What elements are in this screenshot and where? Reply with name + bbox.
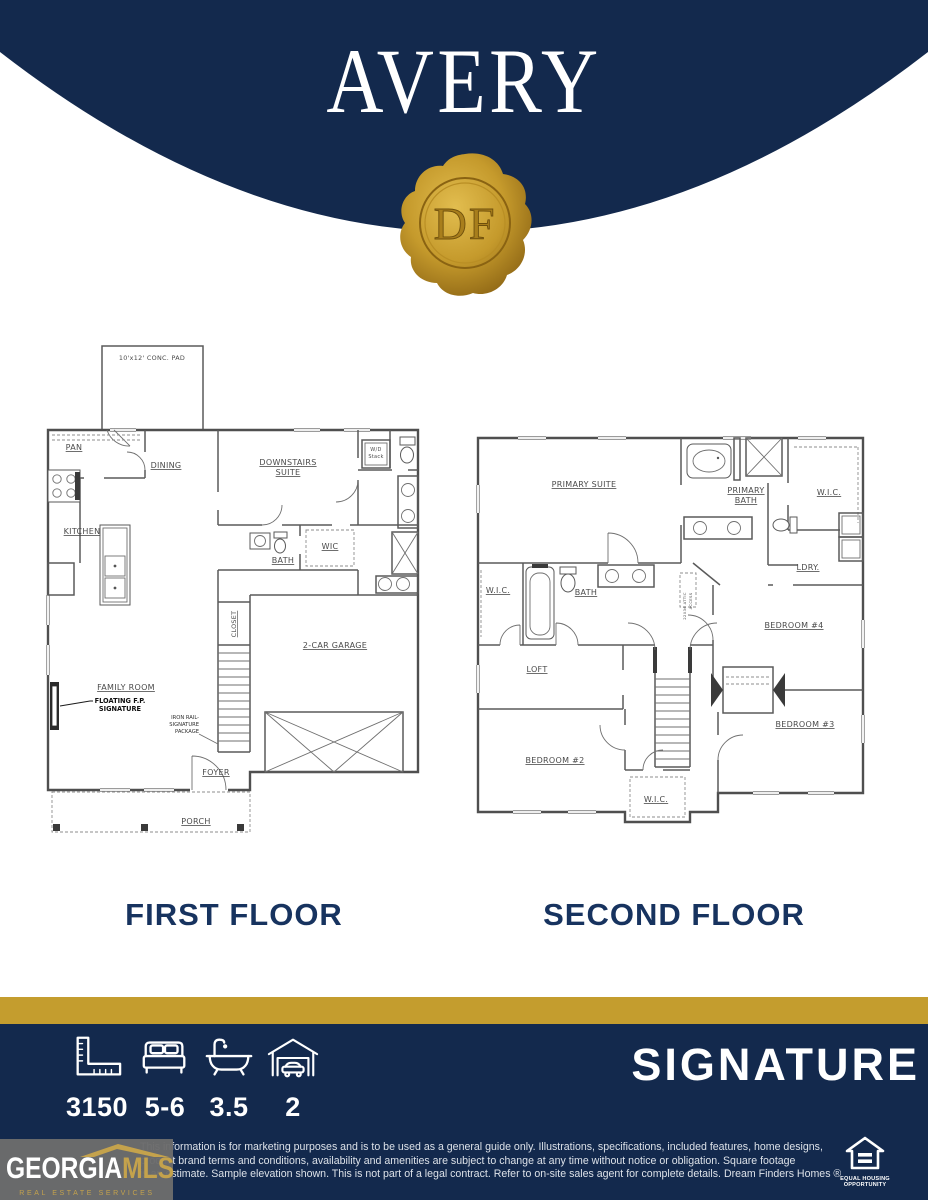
first-floor-title: FIRST FLOOR [44,897,424,933]
georgia-mls-logo: GEORGIAMLS REAL ESTATE SERVICES [0,1139,173,1200]
label-wic: WIC [322,542,339,551]
stat-square-feet: 3150 [66,1034,128,1123]
label-closet: CLOSET [230,611,238,638]
label-garage: 2-CAR GARAGE [303,641,367,650]
georgia-mls-tagline: REAL ESTATE SERVICES [6,1190,168,1197]
label-bedroom2: BEDROOM #2 [525,756,584,765]
stat-bathrooms: 3.5 [202,1034,256,1123]
bedrooms-value: 5-6 [138,1092,192,1123]
label-wd-stack: W/D [370,447,381,453]
svg-text:PACKAGE: PACKAGE [175,729,199,735]
label-iron-rail: IRON RAIL- [171,715,199,721]
label-primary-suite: PRIMARY SUITE [552,480,617,489]
label-foyer: FOYER [202,768,230,777]
bed-icon [138,1034,192,1082]
label-bath: BATH [272,556,294,565]
series-name: SIGNATURE [631,1039,920,1091]
label-porch: PORCH [181,817,210,826]
label-wic-bottom: W.I.C. [644,795,668,804]
label-bath: BATH [575,588,597,597]
flyer-page: AVERY DF [0,0,928,1200]
svg-text:Stack: Stack [368,454,383,460]
svg-text:BATH: BATH [735,496,757,505]
seal-monogram: DF [434,198,497,249]
disclaimer-text: This information is for marketing purpos… [140,1141,912,1182]
label-downstairs-suite: DOWNSTAIRS [259,458,316,467]
svg-text:SIGNATURE: SIGNATURE [99,705,142,713]
svg-text:ACCESS: ACCESS [688,592,693,609]
equal-housing-house-icon [845,1136,885,1170]
label-kitchen: KITCHEN [64,527,101,536]
label-pantry: PAN [66,443,83,452]
label-wic-left: W.I.C. [486,586,510,595]
square-feet-value: 3150 [66,1092,128,1123]
label-floating-fp: FLOATING F.P. [95,697,146,705]
label-conc-pad: 10'x12' CONC. PAD [119,354,185,362]
label-family-room: FAMILY ROOM [97,683,155,692]
ruler-icon [70,1034,124,1082]
garage-icon [266,1034,320,1082]
label-bedroom3: BEDROOM #3 [775,720,834,729]
second-floor-plan: PRIMARY SUITE PRIMARY BATH W.I.C. LDRY. … [468,425,880,835]
label-primary-bath: PRIMARY [727,486,764,495]
svg-text:SIGNATURE: SIGNATURE [169,722,199,728]
label-loft: LOFT [526,665,547,674]
stat-bedrooms: 5-6 [138,1034,192,1123]
bathtub-icon [202,1034,256,1082]
first-floor-walls [45,346,418,832]
second-floor-title: SECOND FLOOR [468,897,880,933]
garage-value: 2 [266,1092,320,1123]
label-bedroom4: BEDROOM #4 [764,621,823,630]
label-wic-right: W.I.C. [817,488,841,497]
svg-text:SUITE: SUITE [276,468,301,477]
gold-stripe [0,997,928,1024]
wax-seal-logo-icon: DF [394,150,536,300]
label-attic-access: 22X36 ATTIC [682,592,687,619]
plan-title: AVERY [65,28,863,134]
label-laundry: LDRY. [797,563,820,572]
label-dining: DINING [151,461,182,470]
first-floor-plan: 10'x12' CONC. PAD PAN DINING DOWNSTAIRS … [44,340,424,845]
georgia-mls-name: GEORGIAMLS [6,1152,174,1186]
equal-housing-logo: EQUAL HOUSING OPPORTUNITY [833,1136,897,1189]
bathrooms-value: 3.5 [202,1092,256,1123]
stat-garage: 2 [266,1034,320,1123]
